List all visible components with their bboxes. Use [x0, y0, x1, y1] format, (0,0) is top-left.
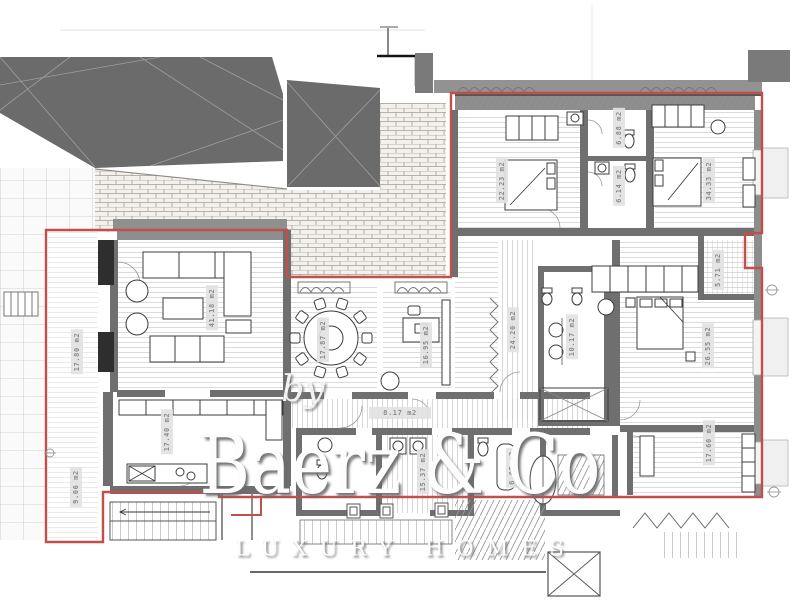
room-label-hallway: 24.20 m2 [507, 308, 519, 353]
floor-plan-drawing [0, 0, 800, 600]
room-label-bedroom-3: 34.33 m2 [703, 159, 715, 204]
room-label-bedroom-4: 17.60 m2 [703, 421, 715, 466]
room-label-terrace-south: 9.06 m2 [70, 467, 82, 507]
room-label-living-room: 41.18 m2 [206, 286, 218, 331]
room-label-study: 16.95 m2 [420, 323, 432, 368]
ladder-icon [4, 292, 38, 316]
wc-fixtures [317, 438, 332, 479]
room-label-terrace-west: 17.80 m2 [71, 330, 83, 375]
room-label-master-bathroom: 10.17 m2 [566, 315, 578, 360]
room-label-bathroom-4: 6.05 m2 [506, 448, 518, 488]
sofa-two-seat [150, 336, 224, 362]
watermark-underline [250, 571, 546, 573]
bedroom-2-furniture [505, 116, 558, 210]
elevator-icon [548, 552, 600, 596]
room-label-laundry: 15.37 m2 [417, 450, 429, 495]
room-label-bathroom-3: 6.14 m2 [613, 166, 625, 206]
room-label-corridor: 8.17 m2 [369, 407, 431, 419]
room-label-bathroom-2: 6.88 m2 [613, 108, 625, 148]
floor-plan-page: 17.80 m2 9.06 m2 41.18 m2 17.87 m2 17.40… [0, 0, 800, 600]
room-label-master-bedroom: 26.55 m2 [702, 324, 714, 369]
room-label-bedroom-2: 22.23 m2 [496, 159, 508, 204]
room-label-dining-room: 17.87 m2 [317, 318, 329, 363]
coffee-table [163, 298, 203, 319]
room-label-kitchen: 17.40 m2 [161, 410, 173, 455]
room-label-closet: 5.71 m2 [712, 250, 724, 290]
kitchen-furniture [119, 400, 283, 483]
